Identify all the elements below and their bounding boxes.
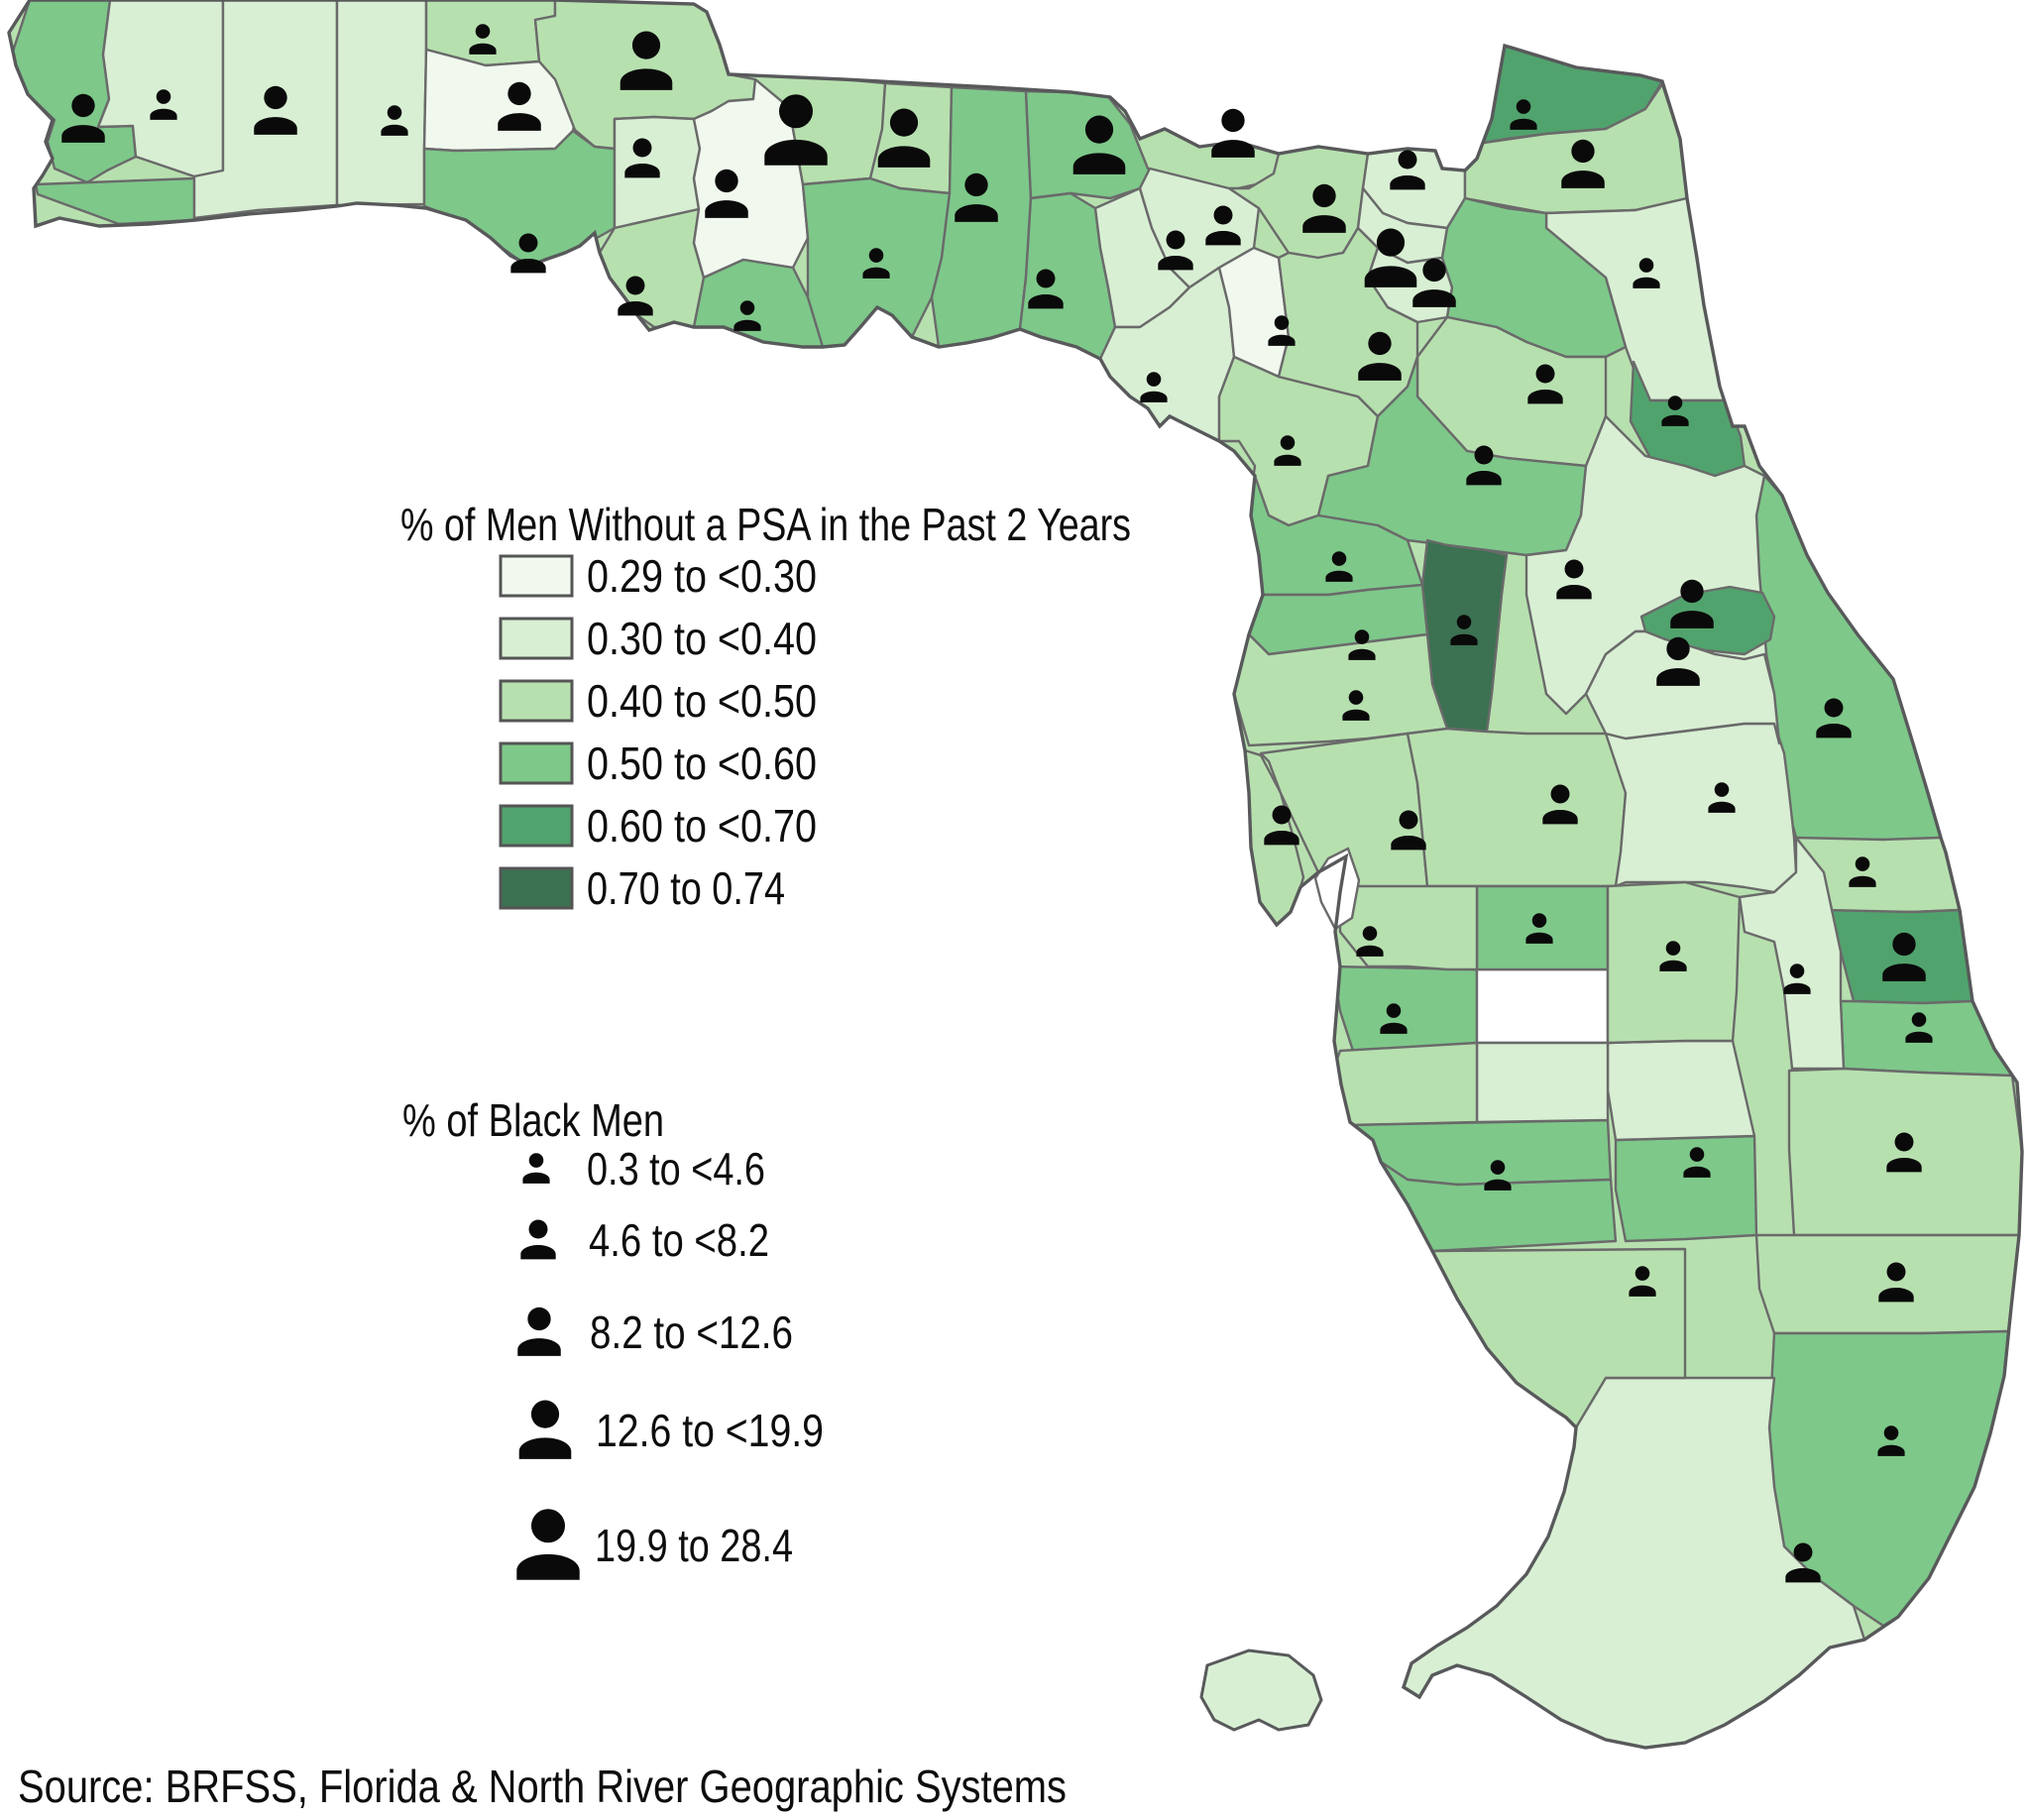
svg-text:Source: BRFSS, Florida & Nort: Source: BRFSS, Florida & North River Geo… <box>18 1761 1067 1812</box>
svg-text:% of Black Men: % of Black Men <box>402 1094 664 1146</box>
svg-text:8.2 to <12.6: 8.2 to <12.6 <box>590 1307 793 1358</box>
svg-text:0.70 to 0.74: 0.70 to 0.74 <box>587 862 785 914</box>
svg-text:12.6 to <19.9: 12.6 to <19.9 <box>596 1405 824 1456</box>
svg-text:0.40 to <0.50: 0.40 to <0.50 <box>587 675 817 727</box>
svg-text:4.6 to <8.2: 4.6 to <8.2 <box>589 1214 769 1266</box>
svg-text:% of Men Without a PSA in the: % of Men Without a PSA in the Past 2 Yea… <box>400 499 1131 550</box>
svg-text:0.3 to <4.6: 0.3 to <4.6 <box>587 1143 765 1194</box>
svg-text:19.9 to 28.4: 19.9 to 28.4 <box>595 1520 793 1571</box>
svg-text:0.60 to <0.70: 0.60 to <0.70 <box>587 800 817 852</box>
svg-text:0.30 to <0.40: 0.30 to <0.40 <box>587 613 817 664</box>
svg-text:0.50 to <0.60: 0.50 to <0.60 <box>587 738 817 789</box>
svg-text:0.29 to <0.30: 0.29 to <0.30 <box>587 550 817 602</box>
